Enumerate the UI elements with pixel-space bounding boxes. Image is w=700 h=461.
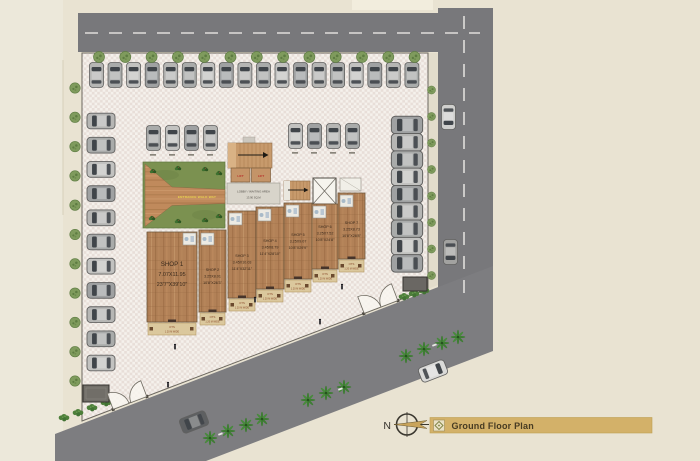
parked-car bbox=[391, 151, 422, 169]
parked-car bbox=[90, 63, 104, 88]
ots-label: OTS bbox=[210, 315, 216, 319]
tree-icon bbox=[70, 288, 80, 298]
ots-width-label: 1.20 M WIDE bbox=[263, 297, 278, 300]
tree-icon bbox=[225, 51, 236, 62]
ots-width-label: 1.20 M WIDE bbox=[291, 287, 306, 290]
tree-icon bbox=[427, 271, 435, 279]
parked-car bbox=[327, 124, 341, 149]
ots-label: OTS bbox=[267, 292, 273, 296]
parked-car bbox=[391, 220, 422, 238]
parked-car bbox=[87, 331, 115, 347]
parked-car bbox=[127, 63, 141, 88]
shop-door bbox=[294, 277, 302, 280]
tree-icon bbox=[330, 51, 341, 62]
shop-door bbox=[321, 267, 329, 270]
ots-width-label: 1.20 M WIDE bbox=[318, 277, 333, 280]
tree-icon bbox=[172, 51, 183, 62]
parked-car bbox=[87, 210, 115, 226]
road-car bbox=[442, 105, 456, 130]
site-plan-canvas: ENTRANCE WALK WAY LIFT LIFT LOBBY / WAIT… bbox=[0, 0, 700, 461]
ots-label: OTS bbox=[239, 301, 245, 305]
parked-car bbox=[386, 63, 400, 88]
parked-car bbox=[308, 124, 322, 149]
parked-car bbox=[182, 63, 196, 88]
parked-car bbox=[185, 126, 199, 151]
shop-label: 3.25X9.07 bbox=[290, 240, 307, 244]
parked-car bbox=[145, 63, 159, 88]
parked-car bbox=[391, 134, 422, 152]
parked-car bbox=[164, 63, 178, 88]
shop-label: SHOP 1 bbox=[161, 261, 184, 268]
shop-label: 3.25X7.52 bbox=[317, 232, 334, 236]
palm-tree-icon bbox=[301, 393, 316, 408]
pedestrian bbox=[341, 284, 343, 290]
shop-label: 23'7"X39'10" bbox=[157, 282, 188, 288]
shop-label: 3.45X10.03 bbox=[233, 261, 252, 265]
lift-left-label: LIFT bbox=[237, 174, 243, 178]
tree-icon bbox=[199, 51, 210, 62]
parked-car bbox=[108, 63, 122, 88]
palm-tree-icon bbox=[239, 418, 254, 433]
tree-icon bbox=[427, 218, 435, 226]
tree-icon bbox=[70, 259, 80, 269]
tree-icon bbox=[70, 112, 80, 122]
lobby-label: LOBBY / WAITING AREA bbox=[237, 190, 270, 194]
parked-car bbox=[201, 63, 215, 88]
tree-icon bbox=[70, 83, 80, 93]
parked-car bbox=[331, 63, 345, 88]
shop-1: SHOP 17.07X11.9523'7"X39'10"OTS1.20 M WI… bbox=[147, 232, 197, 335]
shop-door bbox=[348, 257, 356, 260]
ots-label: OTS bbox=[349, 262, 355, 266]
parked-car bbox=[349, 63, 363, 88]
ots-strip: OTS1.20 M WIDE bbox=[200, 313, 225, 325]
ots-strip: OTS1.20 M WIDE bbox=[257, 290, 283, 302]
shop-label: SHOP 6 bbox=[318, 225, 331, 229]
background-left-strip bbox=[0, 0, 63, 461]
tree-icon bbox=[70, 229, 80, 239]
parked-car bbox=[391, 237, 422, 255]
north-label: N bbox=[383, 420, 391, 432]
ots-strip: OTS1.20 M WIDE bbox=[148, 323, 196, 335]
shop-door bbox=[238, 296, 246, 299]
shop-label: 11'4"X32'11" bbox=[232, 267, 253, 271]
shop-door bbox=[266, 287, 274, 290]
security-cabin bbox=[403, 277, 427, 291]
entrance-garden: ENTRANCE WALK WAY bbox=[143, 162, 225, 228]
tree-icon bbox=[251, 51, 262, 62]
parked-car bbox=[405, 63, 419, 88]
parked-car bbox=[391, 203, 422, 221]
shop-label: 10'8"X26'3" bbox=[203, 281, 222, 285]
shop-label: 10'8"X24'8" bbox=[316, 238, 335, 242]
ground-floor-plan: ENTRANCE WALK WAY LIFT LIFT LOBBY / WAIT… bbox=[0, 0, 700, 461]
lobby-area-value: 13.90 SQ.M bbox=[246, 196, 261, 200]
tree-icon bbox=[93, 51, 104, 62]
shop-label: 7.07X11.95 bbox=[158, 272, 185, 278]
palm-tree-icon bbox=[399, 349, 414, 364]
ots-label: OTS bbox=[295, 282, 301, 286]
ots-label: OTS bbox=[169, 325, 175, 329]
shop-7: SHOP 73.25X8.7310'8"X28'8"OTS1.20 M WIDE bbox=[338, 193, 365, 272]
tree-icon bbox=[304, 51, 315, 62]
parked-car bbox=[391, 255, 422, 273]
shop-2: SHOP 23.25X8.0110'8"X26'3"OTS1.20 M WIDE bbox=[199, 230, 226, 325]
ots-label: OTS bbox=[322, 272, 328, 276]
shop-door bbox=[168, 320, 176, 323]
tree-icon bbox=[70, 346, 80, 356]
shop-5: SHOP 53.25X9.0710'8"X29'9"OTS1.20 M WIDE bbox=[284, 203, 312, 292]
parked-car bbox=[87, 355, 115, 371]
ots-strip: OTS1.20 M WIDE bbox=[285, 280, 311, 292]
parked-car bbox=[87, 283, 115, 299]
parked-car bbox=[87, 113, 115, 129]
parked-car bbox=[391, 116, 422, 134]
shop-3: SHOP 33.45X10.0311'4"X32'11"OTS1.20 M WI… bbox=[228, 211, 256, 311]
tree-icon bbox=[120, 51, 131, 62]
parking-col-right bbox=[391, 116, 422, 272]
lift-left: LIFT bbox=[231, 168, 250, 182]
shop-label: SHOP 7 bbox=[345, 221, 358, 225]
ots-width-label: 1.20 M WIDE bbox=[165, 330, 180, 333]
tree-icon bbox=[427, 245, 435, 253]
palm-tree-icon bbox=[451, 330, 466, 345]
parking-col-left bbox=[87, 113, 115, 371]
pedestrian bbox=[254, 297, 256, 303]
tree-icon bbox=[70, 141, 80, 151]
parked-car bbox=[312, 63, 326, 88]
shop-label: 3.25X8.01 bbox=[204, 275, 221, 279]
pedestrian bbox=[174, 344, 176, 350]
ots-width-label: 1.20 M WIDE bbox=[205, 320, 220, 323]
shop-label: SHOP 2 bbox=[206, 268, 219, 272]
entrance-walkway-label: ENTRANCE WALK WAY bbox=[178, 195, 217, 199]
palm-tree-icon bbox=[203, 431, 218, 446]
ots-strip: OTS1.20 M WIDE bbox=[313, 270, 337, 282]
background-parcel-north bbox=[352, 0, 433, 10]
lift-shaft bbox=[313, 178, 336, 204]
tree-icon bbox=[278, 51, 289, 62]
shop-6: SHOP 63.25X7.5210'8"X24'8"OTS1.20 M WIDE bbox=[312, 204, 338, 282]
palm-tree-icon bbox=[319, 386, 334, 401]
parked-car bbox=[219, 63, 233, 88]
shop-label: 3.45X8.79 bbox=[262, 246, 279, 250]
parked-car bbox=[391, 185, 422, 203]
palm-tree-icon bbox=[221, 424, 236, 439]
tree-icon bbox=[427, 192, 435, 200]
tree-icon bbox=[383, 51, 394, 62]
parked-car bbox=[87, 307, 115, 323]
stair-landing-notch bbox=[243, 137, 255, 143]
shop-label: SHOP 4 bbox=[263, 239, 276, 243]
pedestrian bbox=[319, 319, 321, 325]
parked-car bbox=[87, 162, 115, 178]
tree-icon bbox=[70, 376, 80, 386]
parked-car bbox=[289, 124, 303, 149]
palm-tree-icon bbox=[417, 342, 432, 357]
tree-icon bbox=[70, 171, 80, 181]
tree-icon bbox=[427, 165, 435, 173]
parked-car bbox=[275, 63, 289, 88]
parked-car bbox=[368, 63, 382, 88]
ots-strip: OTS1.20 M WIDE bbox=[339, 260, 364, 272]
parked-car bbox=[87, 234, 115, 250]
parked-car bbox=[294, 63, 308, 88]
parked-car bbox=[147, 126, 161, 151]
shop-label: 11'4"X28'10" bbox=[260, 252, 281, 256]
tree-icon bbox=[427, 86, 435, 94]
shop-4: SHOP 43.45X8.7911'4"X28'10"OTS1.20 M WID… bbox=[256, 207, 284, 302]
ots-width-label: 1.20 M WIDE bbox=[344, 267, 359, 270]
tree-icon bbox=[146, 51, 157, 62]
parked-car bbox=[166, 126, 180, 151]
road-car bbox=[444, 240, 458, 265]
utility-box-left bbox=[83, 385, 109, 402]
tree-icon bbox=[356, 51, 367, 62]
ots-width-label: 1.20 M WIDE bbox=[235, 306, 250, 309]
parked-car bbox=[87, 137, 115, 153]
ots-strip: OTS1.20 M WIDE bbox=[229, 299, 255, 311]
shop-label: SHOP 3 bbox=[235, 254, 248, 258]
plan-title: Ground Floor Plan bbox=[452, 421, 534, 431]
shop-label: 3.25X8.73 bbox=[343, 228, 360, 232]
tree-icon bbox=[409, 51, 420, 62]
parked-car bbox=[87, 186, 115, 202]
stair-main bbox=[228, 143, 272, 168]
lift-right: LIFT bbox=[252, 168, 271, 182]
parked-car bbox=[238, 63, 252, 88]
parked-car bbox=[204, 126, 218, 151]
pedestrian bbox=[167, 382, 169, 388]
stair-secondary bbox=[284, 181, 310, 200]
palm-tree-icon bbox=[255, 412, 270, 427]
parked-car bbox=[87, 258, 115, 274]
lift-right-label: LIFT bbox=[258, 174, 264, 178]
parked-car bbox=[346, 124, 360, 149]
shop-label: 10'8"X29'9" bbox=[289, 246, 308, 250]
lobby-waiting-area: LOBBY / WAITING AREA 13.90 SQ.M bbox=[227, 183, 280, 204]
shop-label: SHOP 5 bbox=[291, 233, 304, 237]
legend-banner: Ground Floor Plan bbox=[430, 418, 652, 434]
tree-icon bbox=[427, 112, 435, 120]
palm-tree-icon bbox=[337, 380, 352, 395]
duct-box bbox=[340, 178, 361, 191]
tree-icon bbox=[70, 200, 80, 210]
parked-car bbox=[391, 168, 422, 186]
tree-icon bbox=[427, 139, 435, 147]
shop-label: 10'8"X28'8" bbox=[342, 234, 361, 238]
parked-car bbox=[257, 63, 271, 88]
tree-icon bbox=[70, 317, 80, 327]
shop-door bbox=[209, 310, 217, 313]
palm-tree-icon bbox=[435, 336, 450, 351]
